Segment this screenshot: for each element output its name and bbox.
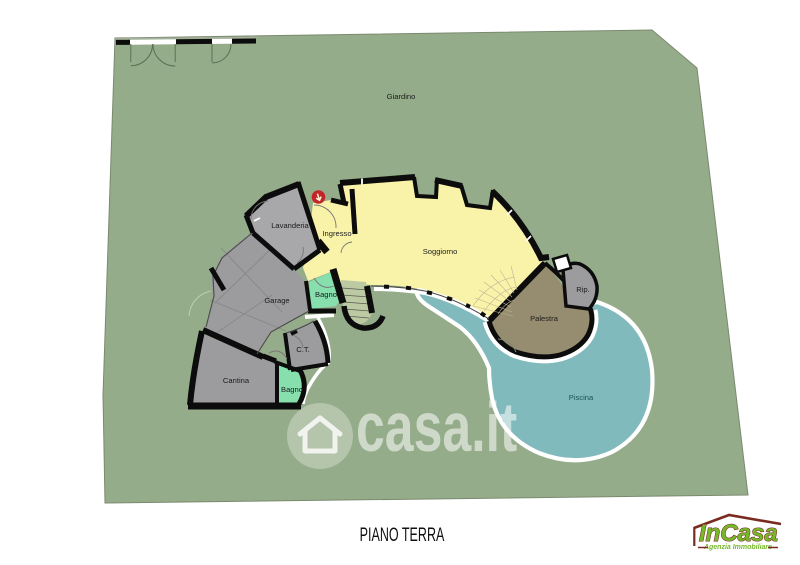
svg-text:Piscina: Piscina [569,393,594,402]
svg-text:Ingresso: Ingresso [322,229,351,238]
svg-text:Soggiorno: Soggiorno [423,247,458,256]
svg-text:Palestra: Palestra [530,314,559,323]
svg-text:Agenzia Immobiliare: Agenzia Immobiliare [703,544,772,551]
svg-text:Lavanderia: Lavanderia [271,221,309,230]
svg-text:casa.it: casa.it [356,388,517,466]
svg-text:Cantina: Cantina [223,376,250,385]
svg-text:PIANO TERRA: PIANO TERRA [360,524,445,545]
svg-text:Bagno: Bagno [281,385,303,394]
svg-text:Rip.: Rip. [576,285,590,294]
svg-text:Giardino: Giardino [387,92,416,101]
svg-text:InCasa: InCasa [699,520,778,547]
svg-text:Garage: Garage [264,296,289,305]
svg-text:C.T.: C.T. [296,345,310,354]
svg-text:Bagno: Bagno [315,290,337,299]
